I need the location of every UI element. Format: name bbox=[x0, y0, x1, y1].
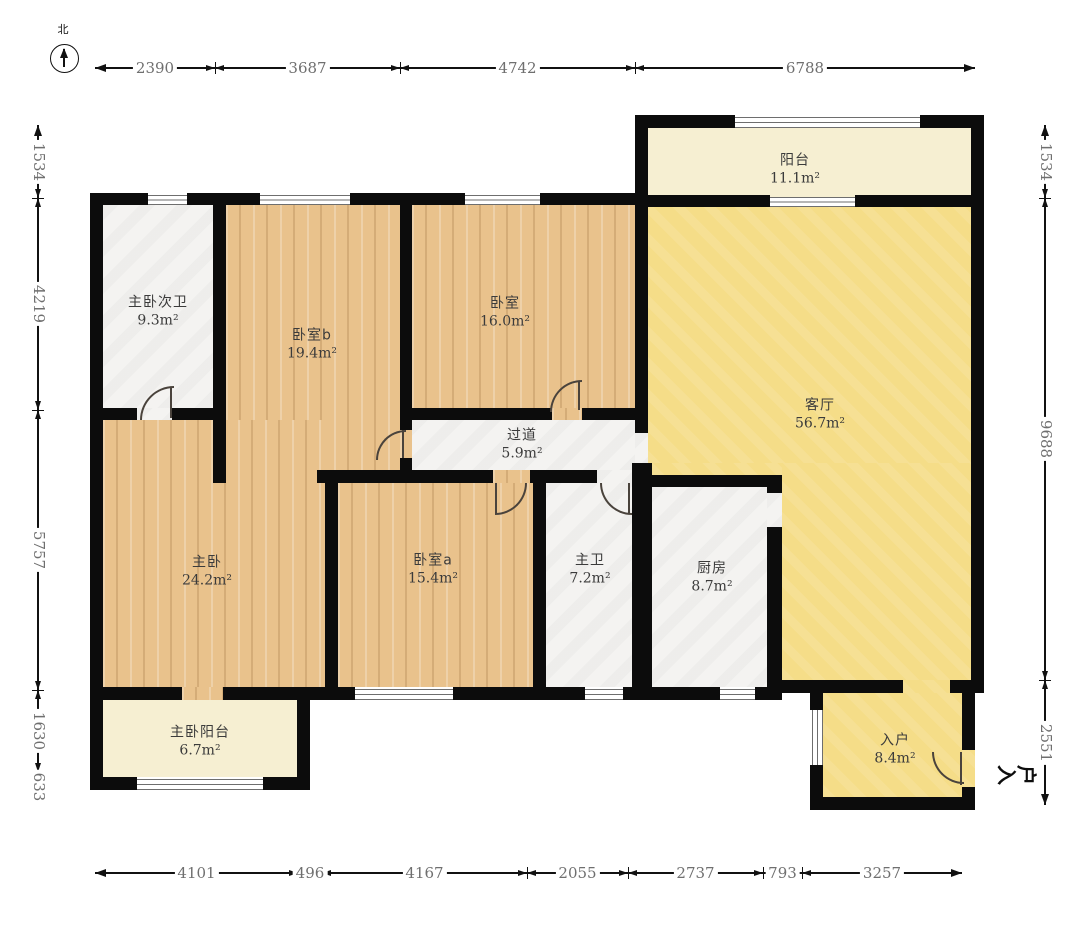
room-yangtai-name: 阳台 bbox=[770, 153, 820, 171]
wall-segment bbox=[810, 797, 975, 810]
dim-bowtie bbox=[1042, 198, 1048, 207]
room-keting-area: 56.7m² bbox=[795, 415, 845, 433]
door-leaf bbox=[402, 430, 404, 458]
dim-tick bbox=[32, 410, 44, 411]
room-ruhu-name: 入户 bbox=[874, 733, 915, 751]
room-zhuwei-name: 主卫 bbox=[569, 553, 610, 571]
dim-tick bbox=[215, 62, 216, 74]
window bbox=[148, 195, 187, 205]
room-woshi-b-area: 19.4m² bbox=[287, 345, 337, 363]
wall-segment bbox=[632, 463, 652, 687]
dim-label: 4167 bbox=[402, 864, 446, 882]
wall-segment bbox=[540, 193, 648, 205]
dim-label: 9688 bbox=[1037, 417, 1055, 461]
dim-bowtie bbox=[802, 870, 811, 876]
dim-label: 3687 bbox=[285, 59, 329, 77]
wall-segment bbox=[317, 470, 493, 483]
wall-segment bbox=[755, 687, 782, 700]
dim-label: 633 bbox=[30, 770, 48, 805]
wall-segment bbox=[263, 777, 310, 790]
dim-tick bbox=[527, 867, 528, 879]
wall-segment bbox=[648, 195, 770, 207]
dim-bowtie bbox=[400, 65, 409, 71]
dim-label: 2737 bbox=[673, 864, 717, 882]
dimension-line-right bbox=[1044, 125, 1046, 805]
room-zhuwei-label: 主卫7.2m² bbox=[569, 553, 610, 588]
room-woshi-b-name: 卧室b bbox=[287, 328, 337, 346]
room-zhuwei-area: 7.2m² bbox=[569, 570, 610, 588]
room-keting-floor bbox=[652, 463, 782, 475]
floor-plan: 北 入户 主卧次卫9.3m²卧室b19.4m²卧室16.0m²阳台11.1m²客… bbox=[0, 0, 1080, 943]
wall-segment bbox=[90, 193, 148, 205]
dim-bowtie bbox=[635, 65, 644, 71]
room-woshi-b-label: 卧室b19.4m² bbox=[287, 328, 337, 363]
room-yangtai-label: 阳台11.1m² bbox=[770, 153, 820, 188]
wall-segment bbox=[90, 193, 103, 790]
dim-bowtie bbox=[628, 870, 637, 876]
door-leaf bbox=[170, 388, 172, 418]
dim-label: 2551 bbox=[1037, 720, 1055, 764]
wall-segment bbox=[855, 195, 973, 207]
room-zhuwo-ciwei-area: 9.3m² bbox=[128, 312, 188, 330]
dim-tick bbox=[1039, 198, 1051, 199]
room-guodao-floor bbox=[635, 433, 648, 463]
room-zhuwo-area: 24.2m² bbox=[182, 572, 232, 590]
dim-arrow bbox=[1041, 125, 1049, 136]
dim-arrow bbox=[95, 64, 106, 72]
dim-arrow bbox=[964, 64, 975, 72]
dim-label: 3257 bbox=[860, 864, 904, 882]
wall-segment bbox=[652, 475, 782, 487]
dim-tick bbox=[628, 867, 629, 879]
door-leaf bbox=[495, 483, 497, 513]
door-leaf bbox=[628, 483, 630, 513]
wall-segment bbox=[782, 680, 903, 693]
dim-tick bbox=[32, 690, 44, 691]
dim-label: 1534 bbox=[1037, 139, 1055, 183]
dim-tick bbox=[400, 62, 401, 74]
dim-arrow bbox=[95, 869, 106, 877]
dim-bowtie bbox=[35, 410, 41, 419]
dim-label: 4742 bbox=[495, 59, 539, 77]
wall-segment bbox=[213, 193, 226, 483]
room-guodao-name: 过道 bbox=[501, 428, 542, 446]
wall-segment bbox=[223, 687, 355, 700]
room-woshi-name: 卧室 bbox=[480, 296, 530, 314]
window bbox=[720, 689, 755, 700]
window bbox=[260, 195, 350, 205]
room-zhuwo-label: 主卧24.2m² bbox=[182, 555, 232, 590]
wall-segment bbox=[635, 193, 648, 433]
entry-arrow-label: 入户 bbox=[998, 761, 1038, 790]
door-leaf bbox=[578, 382, 580, 410]
window bbox=[137, 779, 263, 790]
room-zhuwo-name: 主卧 bbox=[182, 555, 232, 573]
room-guodao-label: 过道5.9m² bbox=[501, 428, 542, 463]
wall-segment bbox=[530, 470, 597, 483]
room-keting-name: 客厅 bbox=[795, 398, 845, 416]
compass-icon bbox=[50, 44, 79, 73]
room-zhuwo-ciwei-name: 主卧次卫 bbox=[128, 295, 188, 313]
room-zhuwei-floor bbox=[597, 470, 633, 483]
wall-segment bbox=[962, 687, 975, 750]
room-zhuwo-yangtai-label: 主卧阳台6.7m² bbox=[170, 725, 230, 760]
wall-segment bbox=[90, 687, 182, 700]
wall-segment bbox=[325, 470, 338, 700]
room-keting-label: 客厅56.7m² bbox=[795, 398, 845, 433]
dim-label: 2055 bbox=[555, 864, 599, 882]
dimension-line-left bbox=[37, 125, 39, 802]
dim-bowtie bbox=[35, 198, 41, 207]
room-ruhu-area: 8.4m² bbox=[874, 750, 915, 768]
wall-segment bbox=[767, 475, 782, 493]
dim-tick bbox=[763, 867, 764, 879]
wall-segment bbox=[90, 408, 137, 420]
room-woshi-a-name: 卧室a bbox=[408, 553, 458, 571]
room-keting-floor bbox=[782, 463, 973, 680]
room-chufang-label: 厨房8.7m² bbox=[691, 561, 732, 596]
dim-label: 4219 bbox=[30, 282, 48, 326]
room-chufang-area: 8.7m² bbox=[691, 578, 732, 596]
room-woshi-a-area: 15.4m² bbox=[408, 570, 458, 588]
dim-bowtie bbox=[215, 65, 224, 71]
wall-segment bbox=[90, 777, 137, 790]
room-ruhu-label: 入户8.4m² bbox=[874, 733, 915, 768]
dim-bowtie bbox=[35, 690, 41, 699]
dim-tick bbox=[635, 62, 636, 74]
dim-tick bbox=[802, 867, 803, 879]
dim-label: 496 bbox=[293, 864, 328, 882]
room-woshi-a-label: 卧室a15.4m² bbox=[408, 553, 458, 588]
wall-segment bbox=[400, 193, 412, 430]
room-zhuwo-floor bbox=[182, 687, 223, 700]
room-yangtai-area: 11.1m² bbox=[770, 170, 820, 188]
wall-segment bbox=[412, 408, 552, 420]
window bbox=[770, 197, 855, 207]
wall-segment bbox=[648, 115, 735, 128]
dim-label: 1534 bbox=[30, 139, 48, 183]
door-leaf bbox=[960, 752, 962, 785]
dim-tick bbox=[32, 198, 44, 199]
dim-arrow bbox=[34, 125, 42, 136]
window bbox=[812, 710, 823, 765]
wall-segment bbox=[920, 115, 973, 128]
wall-segment bbox=[172, 408, 226, 420]
room-zhuwo-yangtai-name: 主卧阳台 bbox=[170, 725, 230, 743]
room-zhuwo-yangtai-area: 6.7m² bbox=[170, 742, 230, 760]
window bbox=[465, 195, 540, 205]
compass-north-label: 北 bbox=[58, 21, 69, 37]
room-chufang-floor bbox=[767, 493, 782, 527]
entry-arrow-label-char: 户 bbox=[1014, 765, 1043, 785]
room-woshi-a-floor bbox=[493, 470, 530, 483]
window bbox=[735, 117, 920, 128]
dim-label: 5757 bbox=[30, 528, 48, 572]
room-zhuwo-ciwei-label: 主卧次卫9.3m² bbox=[128, 295, 188, 330]
dim-arrow bbox=[951, 869, 962, 877]
dim-bowtie bbox=[527, 870, 536, 876]
wall-segment bbox=[810, 693, 823, 710]
dim-bowtie bbox=[1042, 680, 1048, 689]
compass-needle-tip bbox=[60, 48, 68, 58]
wall-segment bbox=[767, 527, 782, 687]
wall-segment bbox=[623, 687, 720, 700]
room-woshi-label: 卧室16.0m² bbox=[480, 296, 530, 331]
room-guodao-area: 5.9m² bbox=[501, 445, 542, 463]
dim-arrow bbox=[1041, 794, 1049, 805]
dim-label: 2390 bbox=[133, 59, 177, 77]
dim-label: 6788 bbox=[783, 59, 827, 77]
wall-segment bbox=[962, 787, 975, 810]
wall-segment bbox=[633, 470, 650, 483]
window bbox=[585, 689, 623, 700]
dim-label: 793 bbox=[765, 864, 800, 882]
dim-label: 1630 bbox=[30, 709, 48, 753]
wall-segment bbox=[453, 687, 585, 700]
room-chufang-name: 厨房 bbox=[691, 561, 732, 579]
window bbox=[355, 689, 453, 700]
dim-label: 4101 bbox=[174, 864, 218, 882]
room-woshi-area: 16.0m² bbox=[480, 313, 530, 331]
dim-tick bbox=[1039, 680, 1051, 681]
room-keting-floor bbox=[903, 680, 950, 693]
wall-segment bbox=[533, 483, 546, 687]
